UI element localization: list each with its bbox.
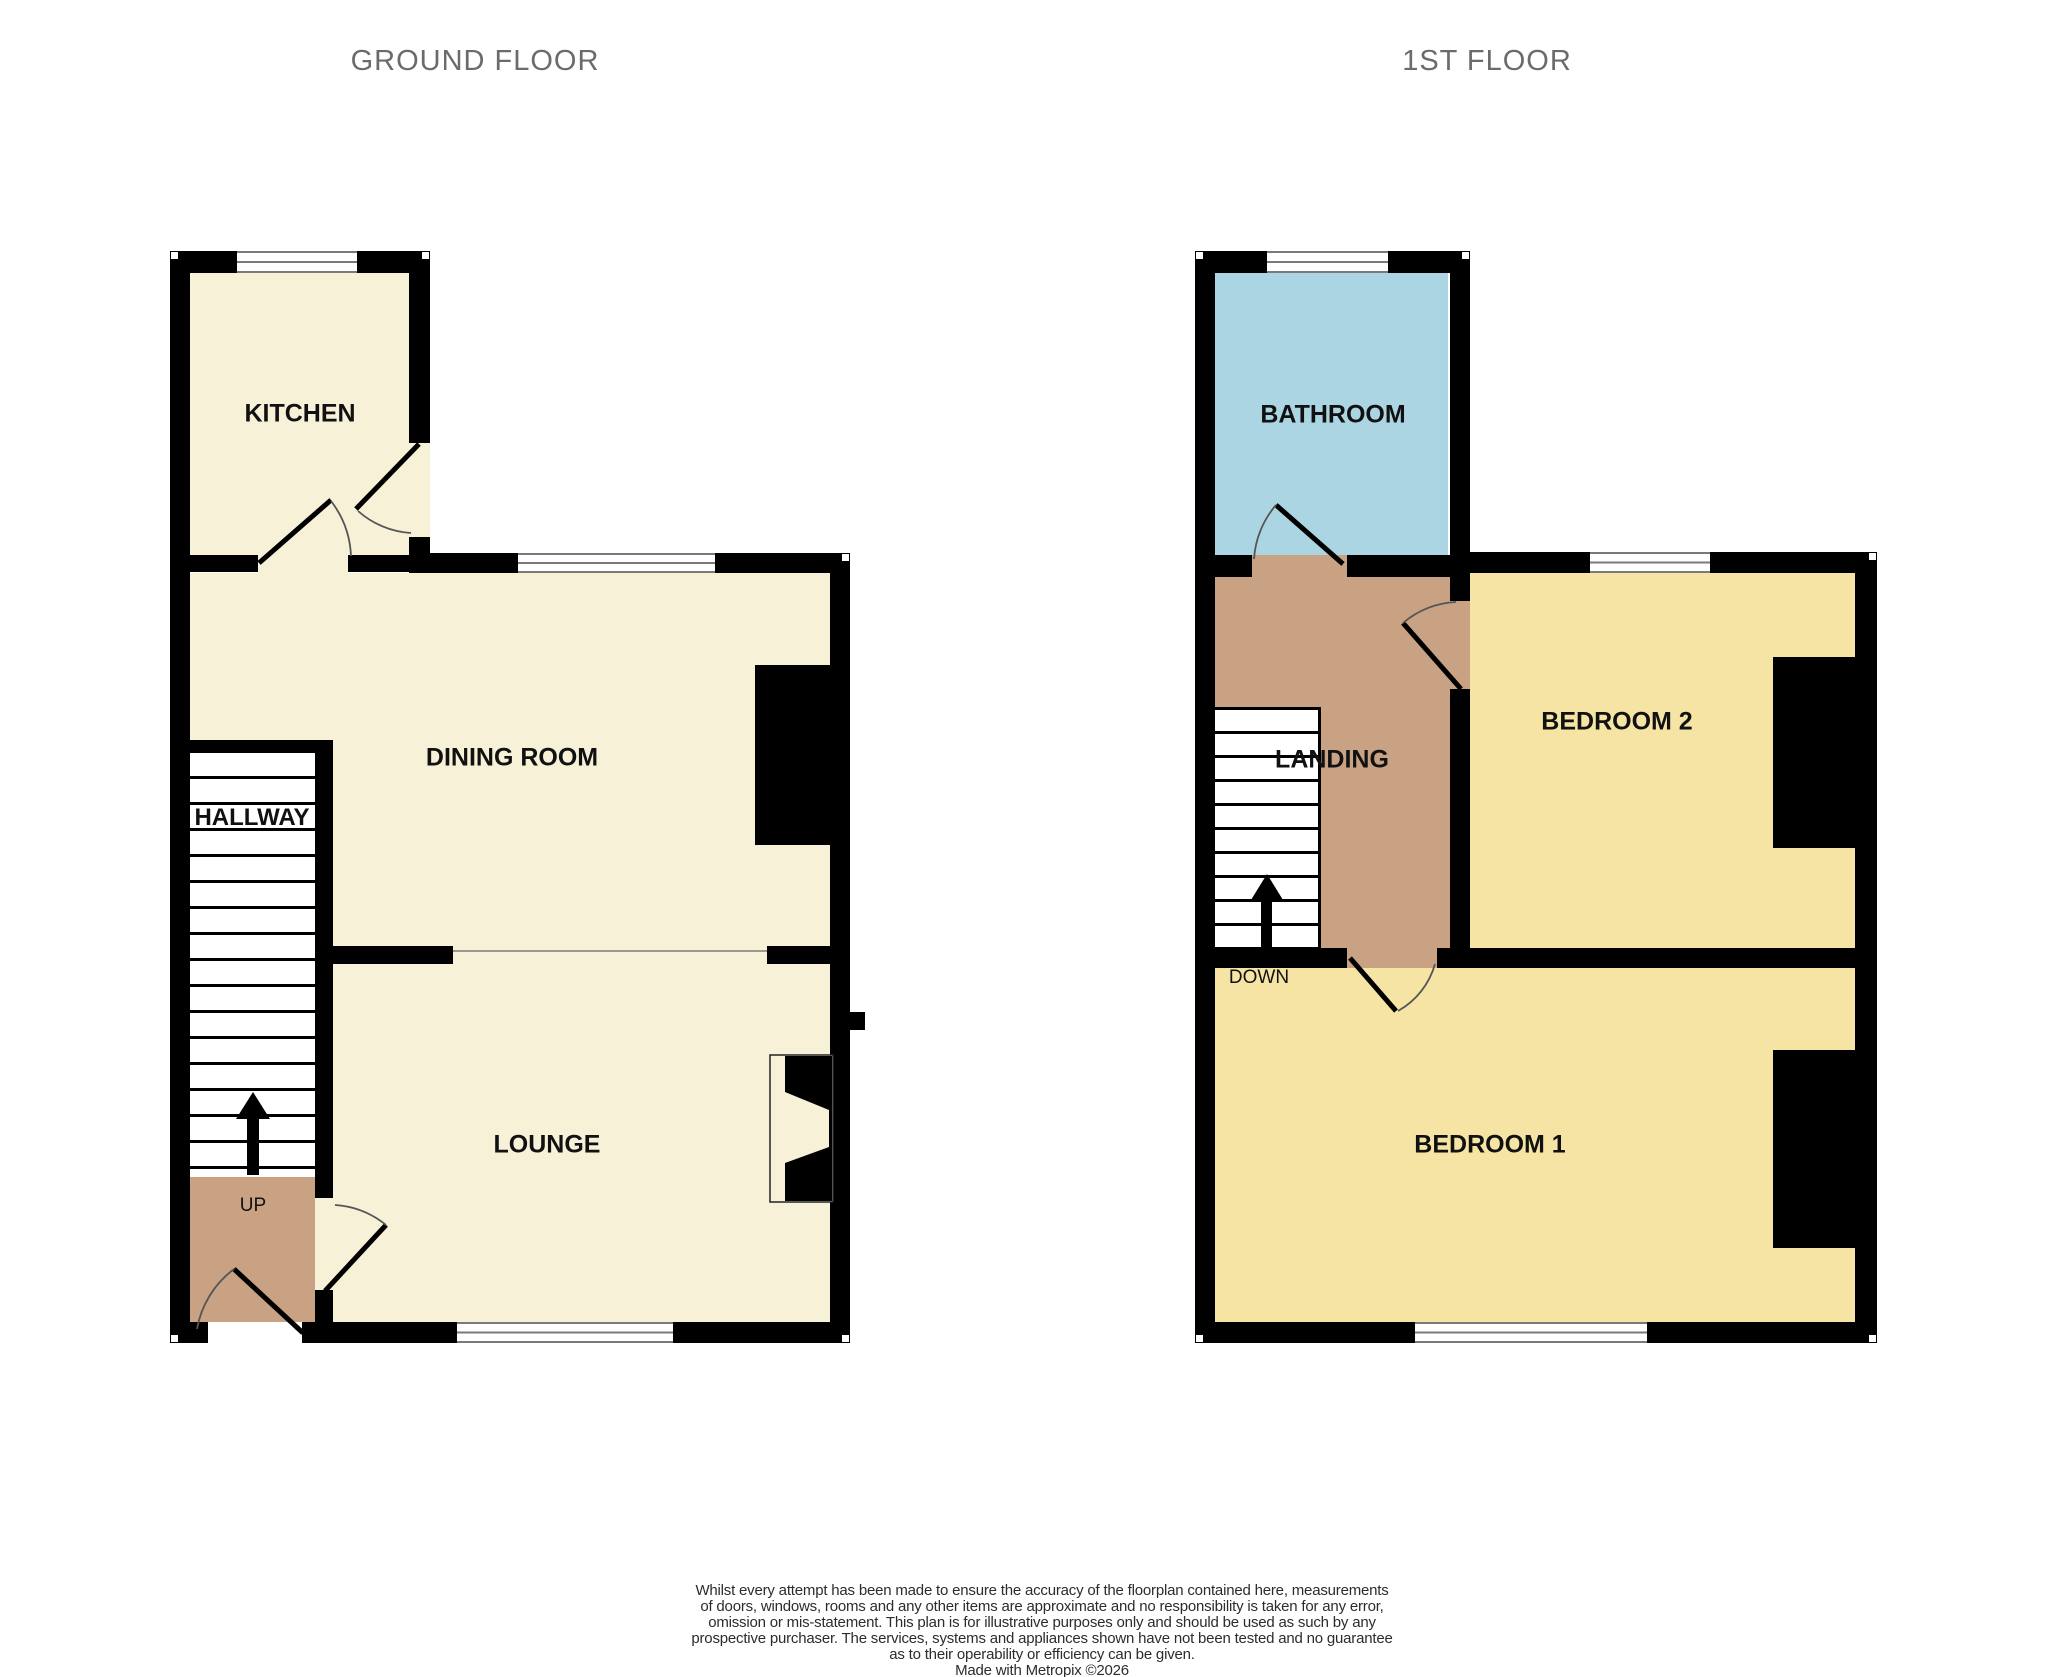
wall: [409, 251, 430, 443]
room-label-hallway: HALLWAY: [194, 804, 309, 832]
corner-mark: [842, 1335, 849, 1342]
chimney-breast-bedroom2: [1773, 657, 1855, 848]
window-bathroom: [1267, 251, 1388, 273]
room-label-lounge: LOUNGE: [494, 1131, 601, 1160]
wall: [170, 251, 190, 1343]
room-label-landing: LANDING: [1275, 746, 1389, 775]
corner-mark: [422, 252, 429, 259]
disclaimer-line: omission or mis-statement. This plan is …: [542, 1615, 1542, 1631]
wall: [348, 555, 409, 572]
door-gap-fill: [1450, 601, 1470, 689]
stair-label-up: UP: [240, 1195, 266, 1217]
wall: [409, 537, 430, 573]
up-arrow-icon: [1251, 874, 1283, 900]
wall: [830, 1012, 865, 1030]
wall: [1450, 251, 1470, 577]
corner-mark: [1196, 252, 1203, 259]
corner-mark: [1869, 1335, 1876, 1342]
disclaimer-text: Whilst every attempt has been made to en…: [542, 1583, 1542, 1677]
wall: [302, 1322, 457, 1343]
window-kitchen: [237, 251, 357, 273]
window-dining: [518, 553, 715, 573]
wall: [333, 946, 453, 964]
chimney-breast-dining: [755, 665, 830, 845]
disclaimer-line: of doors, windows, rooms and any other i…: [542, 1599, 1542, 1615]
wall: [1450, 577, 1470, 601]
wall: [673, 1322, 850, 1343]
open-plan-divider-line: [453, 950, 767, 952]
room-label-dining-room: DINING ROOM: [426, 744, 598, 773]
wall: [1347, 555, 1470, 577]
disclaimer-line: prospective purchaser. The services, sys…: [542, 1631, 1542, 1647]
room-label-bathroom: BATHROOM: [1260, 401, 1405, 430]
window-lounge: [457, 1322, 673, 1343]
wall: [1195, 555, 1252, 577]
wall: [767, 946, 830, 964]
disclaimer-line: as to their operability or efficiency ca…: [542, 1647, 1542, 1663]
corner-mark: [1196, 1335, 1203, 1342]
corner-mark: [171, 252, 178, 259]
wall: [830, 553, 850, 1343]
wall: [170, 555, 258, 572]
up-arrow-shaft: [247, 1117, 259, 1175]
wall: [315, 1290, 333, 1322]
wall: [1195, 251, 1215, 1343]
disclaimer-line: Whilst every attempt has been made to en…: [542, 1583, 1542, 1599]
corner-mark: [171, 1335, 178, 1342]
room-label-bedroom1: BEDROOM 1: [1414, 1131, 1565, 1160]
up-arrow-icon: [236, 1092, 270, 1119]
floor-title-ground: GROUND FLOOR: [275, 45, 675, 78]
up-arrow-shaft: [1261, 898, 1272, 947]
wall: [170, 740, 333, 753]
wall: [1195, 948, 1347, 968]
wall: [315, 740, 333, 1198]
window-bedroom2: [1590, 552, 1710, 573]
chimney-breast-bedroom1: [1773, 1050, 1855, 1248]
stair-label-down: DOWN: [1229, 967, 1289, 989]
corner-mark: [1869, 553, 1876, 560]
floorplan-canvas: GROUND FLOOR 1ST FLOOR KITCHEN DINING RO…: [0, 0, 2048, 1677]
credit-line: Made with Metropix ©2026: [542, 1663, 1542, 1677]
wall: [1437, 948, 1877, 968]
floor-title-first: 1ST FLOOR: [1287, 45, 1687, 78]
corner-mark: [1462, 252, 1469, 259]
wall: [1450, 689, 1470, 948]
door-gap-fill: [258, 555, 348, 573]
door-gap-fill: [409, 443, 430, 537]
window-bedroom1: [1415, 1322, 1647, 1343]
corner-mark: [842, 554, 849, 561]
room-label-bedroom2: BEDROOM 2: [1541, 708, 1692, 737]
room-label-kitchen: KITCHEN: [244, 400, 355, 429]
